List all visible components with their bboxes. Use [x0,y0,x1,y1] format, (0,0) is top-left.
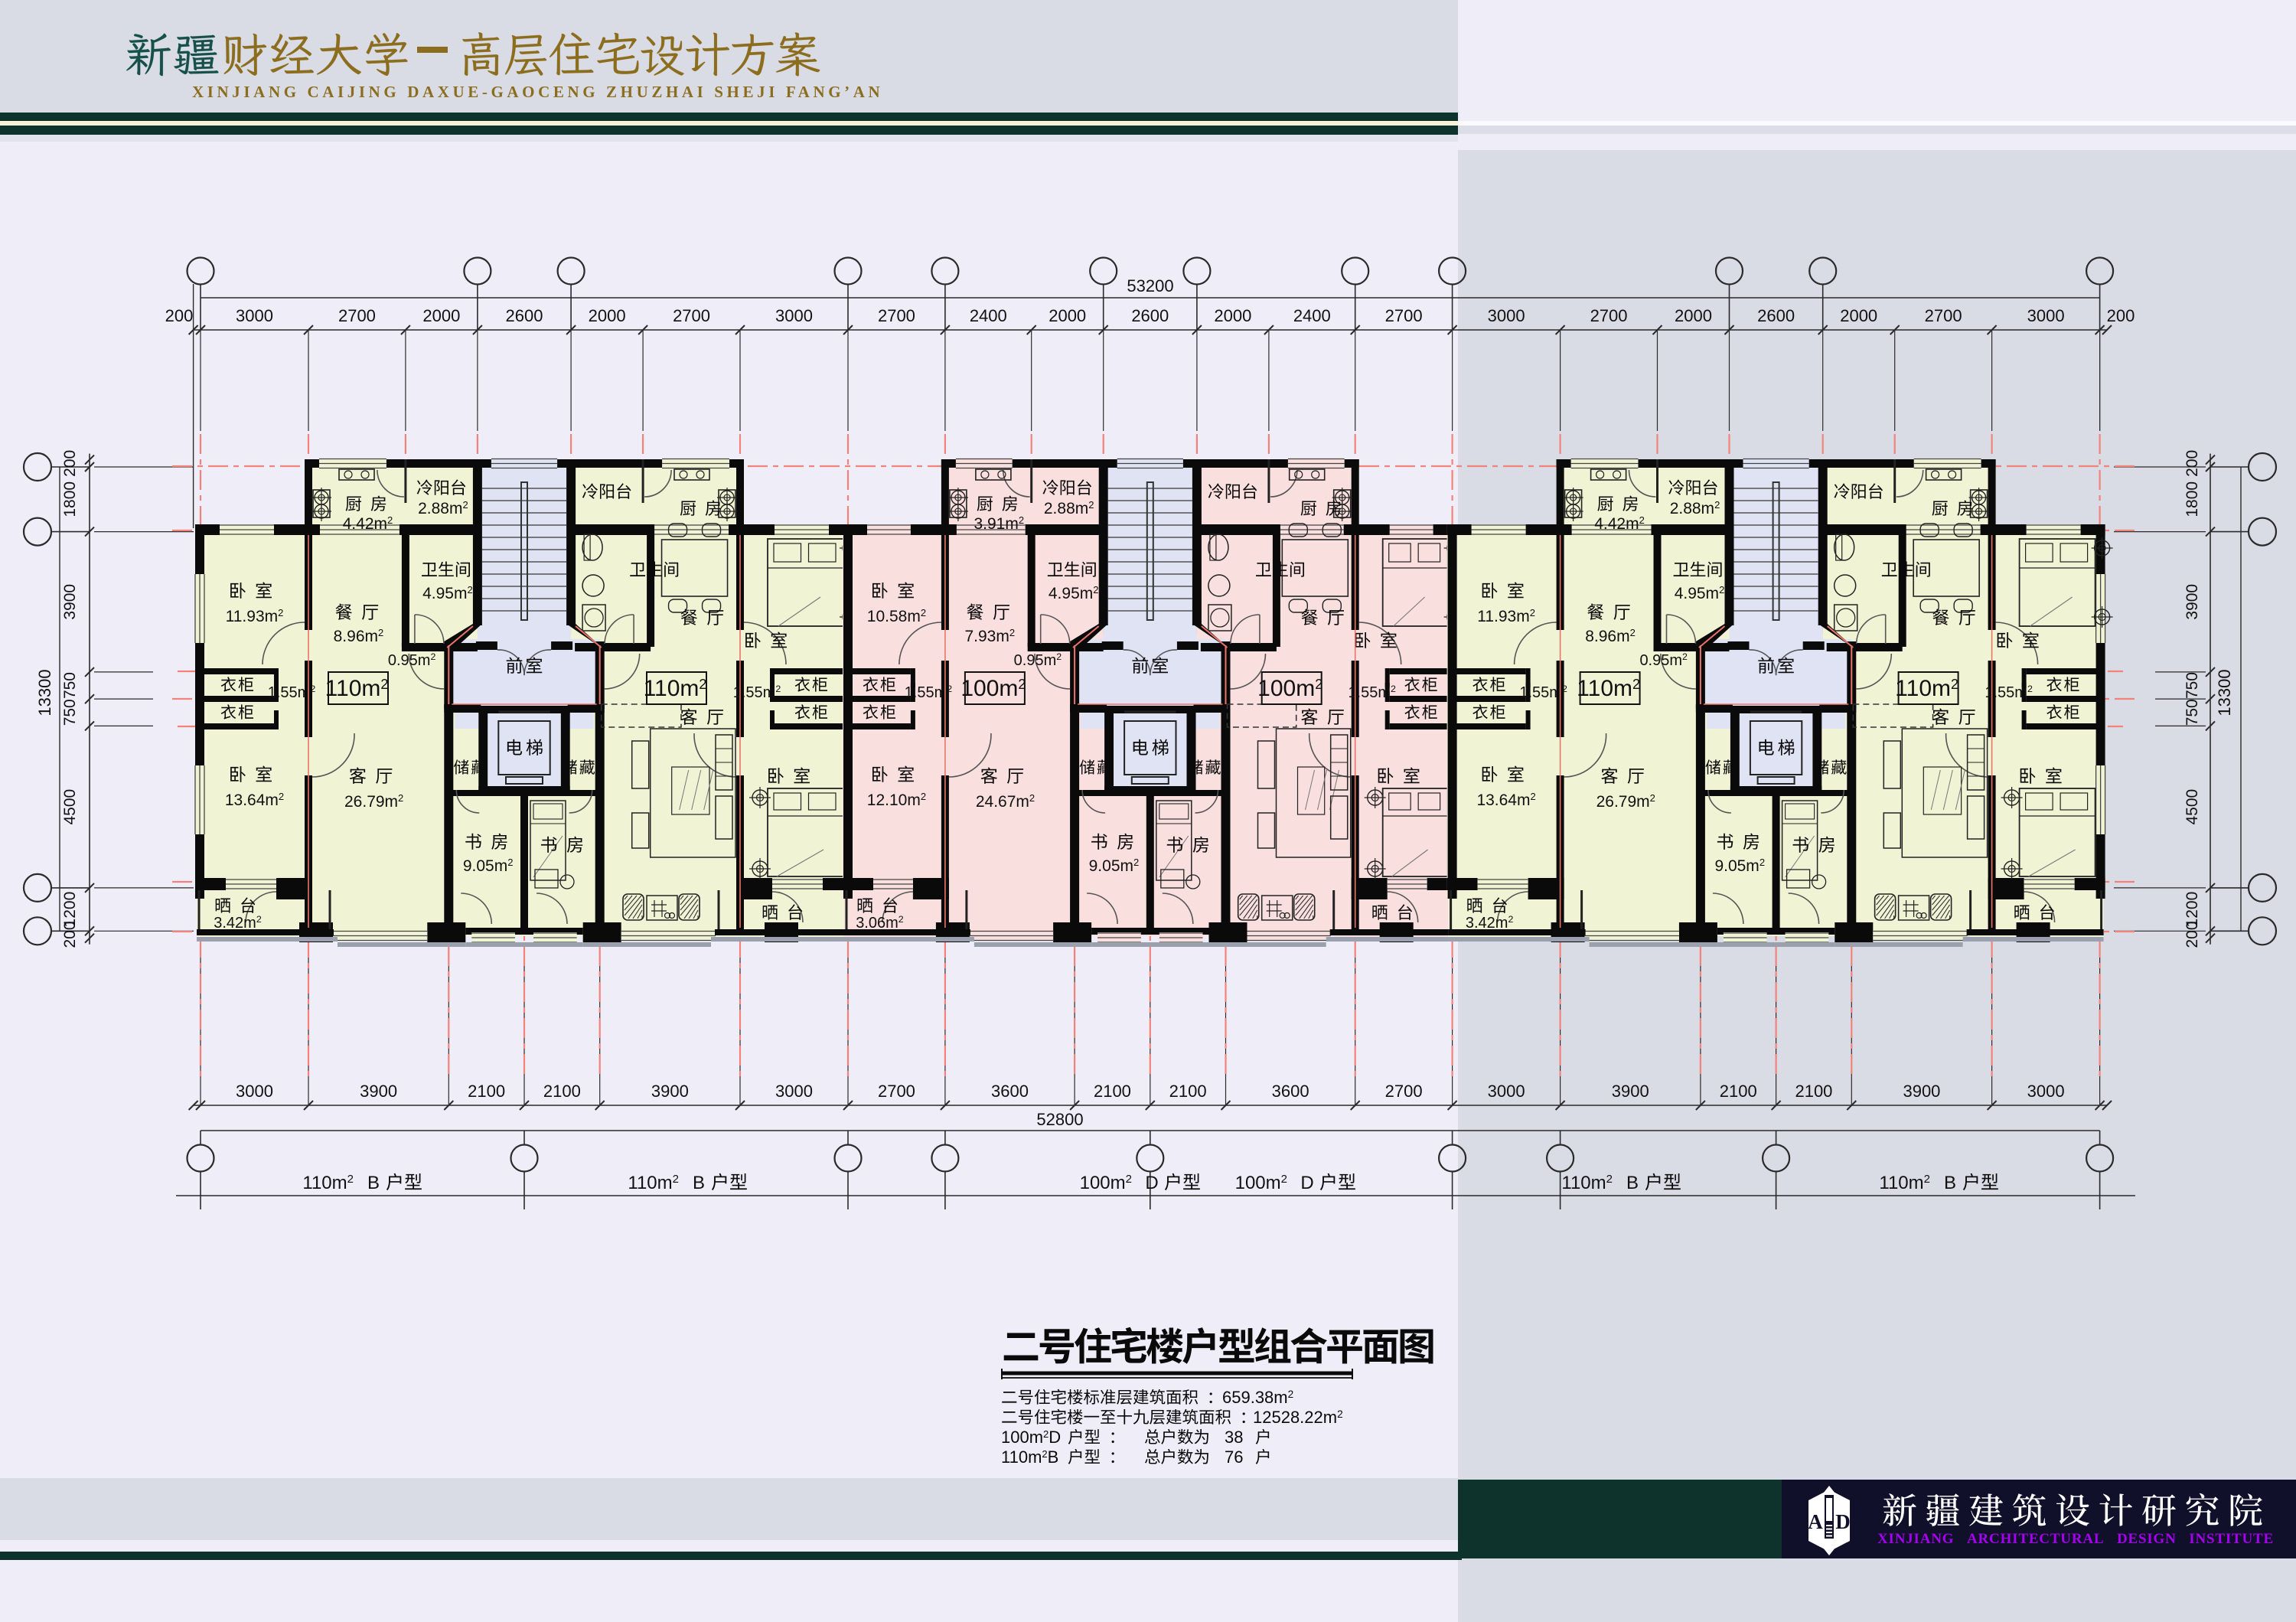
svg-text:4500: 4500 [2183,789,2201,825]
svg-text:3900: 3900 [1903,1082,1940,1101]
svg-text:3000: 3000 [775,306,813,325]
svg-text:2700: 2700 [878,1082,915,1101]
svg-text:13.64m2: 13.64m2 [1476,791,1535,809]
svg-text:200: 200 [2183,450,2201,477]
svg-text:2400: 2400 [970,306,1007,325]
svg-text:XINJIANG CAIJING DAXUE-GAOCENG: XINJIANG CAIJING DAXUE-GAOCENG ZHUZHAI S… [192,83,883,101]
svg-text:2600: 2600 [1757,306,1795,325]
svg-text:24.67m2: 24.67m2 [976,792,1035,811]
svg-text:2100: 2100 [543,1082,581,1101]
svg-text:2000: 2000 [1840,306,1877,325]
svg-text:2600: 2600 [506,306,543,325]
svg-text:7.93m2: 7.93m2 [964,627,1015,645]
svg-text:3900: 3900 [651,1082,689,1101]
svg-text:53200: 53200 [1127,276,1173,295]
svg-text:200: 200 [61,921,79,948]
svg-text:750: 750 [2183,672,2201,699]
svg-text:100m2: 100m2 [1257,676,1322,701]
svg-text:659.38m2: 659.38m2 [1222,1388,1293,1407]
svg-text:4500: 4500 [61,789,79,825]
svg-text:3000: 3000 [236,1082,273,1101]
svg-text:3.42m2: 3.42m2 [1466,914,1514,932]
svg-text:2600: 2600 [1131,306,1169,325]
svg-text:3600: 3600 [1272,1082,1309,1101]
svg-text:76: 76 [1225,1447,1243,1467]
svg-text:110m2B: 110m2B [1001,1447,1058,1467]
svg-text:A: A [1808,1510,1823,1533]
svg-text:2700: 2700 [1385,1082,1423,1101]
svg-text:9.05m2: 9.05m2 [463,857,514,875]
svg-text:750: 750 [2183,699,2201,726]
svg-text:13300: 13300 [2215,669,2234,716]
svg-text:2100: 2100 [1094,1082,1131,1101]
svg-text:750: 750 [61,699,79,726]
svg-text:13300: 13300 [35,669,54,716]
svg-text:26.79m2: 26.79m2 [344,792,403,811]
svg-text:2000: 2000 [1675,306,1712,325]
svg-text:3.91m2: 3.91m2 [974,514,1024,533]
svg-text:0.95m2: 0.95m2 [388,651,436,669]
svg-text:3.42m2: 3.42m2 [214,914,262,932]
svg-text:110m2: 110m2 [325,676,389,701]
svg-text:0.95m2: 0.95m2 [1639,651,1688,669]
svg-text:12528.22m2: 12528.22m2 [1253,1408,1343,1427]
svg-text:11.93m2: 11.93m2 [226,607,284,625]
svg-text:2000: 2000 [422,306,460,325]
svg-text:3.06m2: 3.06m2 [856,914,904,932]
svg-text:100m2: 100m2 [960,676,1026,701]
svg-text:2.88m2: 2.88m2 [1670,499,1720,517]
svg-text:4.95m2: 4.95m2 [422,584,473,602]
svg-text:11.93m2: 11.93m2 [1477,607,1535,625]
svg-text:2.88m2: 2.88m2 [418,499,468,517]
svg-text:10.58m2: 10.58m2 [867,607,926,625]
svg-text:110m2: 110m2 [1895,676,1958,701]
svg-text:B: B [1626,1173,1639,1193]
svg-text:3900: 3900 [61,584,79,620]
svg-text:100m2: 100m2 [1080,1173,1132,1193]
svg-text:1800: 1800 [2183,481,2201,517]
svg-text:3000: 3000 [236,306,273,325]
svg-text:3900: 3900 [360,1082,397,1101]
svg-text:8.96m2: 8.96m2 [334,627,384,645]
svg-text:2000: 2000 [589,306,626,325]
svg-text:B: B [367,1173,380,1193]
svg-text:4.42m2: 4.42m2 [343,514,393,533]
svg-text:26.79m2: 26.79m2 [1596,792,1655,811]
svg-text:2000: 2000 [1049,306,1086,325]
svg-text:200: 200 [2183,921,2201,948]
svg-text:4.95m2: 4.95m2 [1049,584,1099,602]
svg-text:3900: 3900 [1612,1082,1649,1101]
svg-text:200: 200 [2107,306,2135,325]
svg-text:38: 38 [1225,1428,1243,1447]
svg-text:B: B [1944,1173,1956,1193]
svg-text:100m2: 100m2 [1235,1173,1287,1193]
svg-text:3000: 3000 [1488,1082,1525,1101]
svg-text:2700: 2700 [878,306,915,325]
svg-text:200: 200 [61,450,79,477]
svg-text:3000: 3000 [775,1082,813,1101]
svg-text:100m2D: 100m2D [1001,1428,1061,1447]
svg-text:D: D [1835,1510,1851,1533]
svg-text:2700: 2700 [1385,306,1423,325]
svg-text:2100: 2100 [1795,1082,1832,1101]
svg-text:B: B [693,1173,705,1193]
svg-text:2700: 2700 [1925,306,1962,325]
svg-text:3000: 3000 [2027,306,2065,325]
svg-text:D: D [1145,1173,1158,1193]
svg-text:110m2: 110m2 [1561,1173,1613,1193]
svg-text:9.05m2: 9.05m2 [1089,857,1140,875]
svg-text:4.42m2: 4.42m2 [1594,514,1645,533]
svg-text:2100: 2100 [1169,1082,1207,1101]
svg-text:1800: 1800 [61,481,79,517]
svg-text:3000: 3000 [1488,306,1525,325]
svg-text:2100: 2100 [1720,1082,1757,1101]
svg-text:2.88m2: 2.88m2 [1044,499,1094,517]
svg-text:110m2: 110m2 [1879,1173,1930,1193]
svg-text:2100: 2100 [468,1082,505,1101]
svg-text:D: D [1300,1173,1313,1193]
svg-text:200: 200 [165,306,194,325]
svg-text:110m2: 110m2 [302,1173,354,1193]
svg-text:13.64m2: 13.64m2 [225,791,284,809]
svg-text:110m2: 110m2 [628,1173,679,1193]
svg-text:4.95m2: 4.95m2 [1675,584,1725,602]
svg-text:110m2: 110m2 [644,676,707,701]
svg-text:2400: 2400 [1293,306,1331,325]
svg-text:52800: 52800 [1036,1110,1083,1129]
svg-text:3000: 3000 [2027,1082,2065,1101]
svg-text:8.96m2: 8.96m2 [1585,627,1636,645]
svg-text:750: 750 [61,672,79,699]
svg-text:2700: 2700 [338,306,376,325]
svg-text:110m2: 110m2 [1577,676,1640,701]
svg-text:3600: 3600 [991,1082,1029,1101]
svg-text:0.95m2: 0.95m2 [1014,651,1062,669]
svg-text:2700: 2700 [1590,306,1628,325]
svg-text:2000: 2000 [1214,306,1251,325]
svg-text:3900: 3900 [2183,584,2201,620]
svg-text:2700: 2700 [673,306,710,325]
svg-text:9.05m2: 9.05m2 [1714,857,1765,875]
svg-text:XINJIANG ARCHITECTURAL DES: XINJIANG ARCHITECTURAL DESIGN INSTITUTE [1877,1531,2274,1547]
svg-text:12.10m2: 12.10m2 [867,791,926,809]
